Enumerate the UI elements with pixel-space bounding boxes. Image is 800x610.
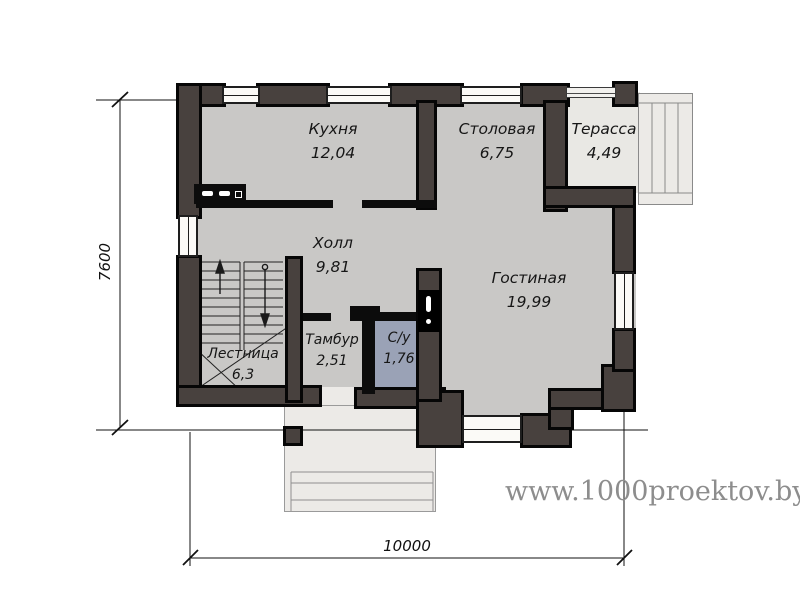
room-area: 2,51 <box>305 354 359 369</box>
room-label-wc: С/у 1,76 <box>383 331 414 367</box>
room-area: 9,81 <box>313 259 353 276</box>
wall-top-pier-1 <box>256 83 330 107</box>
dimension-height: 7600 <box>96 243 114 281</box>
room-label-hall: Холл 9,81 <box>313 235 353 276</box>
room-area: 1,76 <box>383 352 414 367</box>
stove-burner-icon <box>202 191 213 196</box>
porch-column <box>283 426 303 446</box>
vent-dot-icon <box>426 319 431 324</box>
room-label-living: Гостиная 19,99 <box>492 270 567 311</box>
room-name: Лестница <box>207 347 278 362</box>
terrace-step-lines <box>638 103 692 193</box>
stairs-down-arrow <box>261 264 269 326</box>
stove-switch-icon <box>235 191 242 198</box>
room-name: Холл <box>313 235 353 252</box>
room-name: Гостиная <box>492 270 567 287</box>
wall-kitchen-dining <box>416 100 437 210</box>
window-dining <box>460 86 522 104</box>
room-name: Кухня <box>309 121 358 138</box>
room-name: Тамбур <box>305 333 359 348</box>
room-label-terrace: Терасса 4,49 <box>572 121 637 162</box>
room-area: 19,99 <box>492 294 567 311</box>
room-area: 6,75 <box>459 145 536 162</box>
terrace-railing <box>566 87 616 98</box>
room-label-vestibule: Тамбур 2,51 <box>305 333 359 369</box>
watermark-text: www.1000proektov.by <box>505 476 800 507</box>
room-area: 4,49 <box>572 145 637 162</box>
room-label-kitchen: Кухня 12,04 <box>309 121 358 162</box>
floor-plan: Кухня 12,04 Столовая 6,75 Терасса 4,49 Х… <box>0 0 800 610</box>
room-name: Столовая <box>459 121 536 138</box>
stove-burner-icon <box>219 191 230 196</box>
porch-step-lines <box>291 472 433 511</box>
dimension-width: 10000 <box>383 537 431 555</box>
vent-stack <box>416 268 442 402</box>
wall-right-lower <box>612 328 636 372</box>
wall-staircase <box>285 256 303 403</box>
window-living-right <box>614 272 634 330</box>
wall-vestibule-stub <box>303 313 331 321</box>
window-stairs <box>178 215 198 257</box>
wall-kitchen-hall-right <box>362 200 437 208</box>
room-name: С/у <box>383 331 414 346</box>
room-label-stairs: Лестница 6,3 <box>207 347 278 383</box>
vent-slot-icon <box>426 296 431 312</box>
room-area: 12,04 <box>309 145 358 162</box>
room-label-dining: Столовая 6,75 <box>459 121 536 162</box>
wall-wc-left <box>362 312 375 394</box>
room-area: 6,3 <box>207 368 278 383</box>
window-living-bay <box>462 415 522 443</box>
window-kitchen-2 <box>326 86 392 104</box>
room-name: Терасса <box>572 121 637 138</box>
wall-terrace-living <box>543 186 636 208</box>
window-kitchen-1 <box>222 86 260 104</box>
